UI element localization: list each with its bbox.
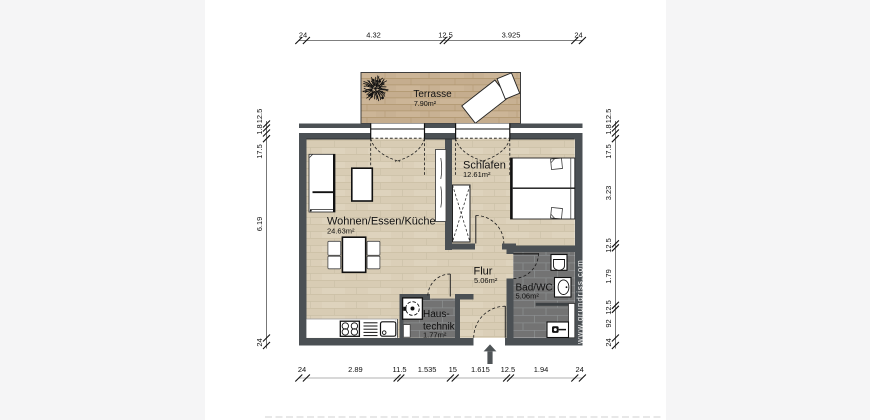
svg-text:5.06m²: 5.06m²	[474, 276, 498, 285]
svg-text:12.5: 12.5	[255, 109, 264, 124]
svg-text:92: 92	[604, 319, 613, 327]
svg-text:12.5: 12.5	[604, 109, 613, 124]
svg-text:24: 24	[576, 365, 584, 374]
svg-text:12.5: 12.5	[438, 31, 453, 40]
svg-text:17.5: 17.5	[604, 144, 613, 159]
svg-text:1.77m²: 1.77m²	[423, 331, 447, 340]
svg-text:24.63m²: 24.63m²	[327, 226, 355, 235]
svg-text:4.32: 4.32	[366, 31, 381, 40]
svg-text:24: 24	[604, 338, 613, 346]
svg-text:1.535: 1.535	[418, 365, 437, 374]
svg-text:24: 24	[574, 31, 582, 40]
svg-text:Haus-: Haus-	[423, 309, 450, 320]
svg-text:12.61m²: 12.61m²	[463, 170, 491, 179]
svg-text:11.5: 11.5	[392, 365, 406, 374]
svg-text:5.06m²: 5.06m²	[516, 292, 540, 301]
svg-text:24: 24	[298, 365, 306, 374]
svg-text:1.8: 1.8	[604, 124, 613, 134]
svg-text:12.5: 12.5	[604, 300, 613, 315]
svg-text:1.615: 1.615	[471, 365, 490, 374]
svg-text:3.925: 3.925	[502, 31, 521, 40]
svg-text:1.94: 1.94	[534, 365, 549, 374]
svg-text:2.89: 2.89	[348, 365, 363, 374]
svg-text:6.19: 6.19	[255, 217, 264, 232]
svg-text:17.5: 17.5	[255, 144, 264, 159]
svg-text:7.90m²: 7.90m²	[414, 99, 437, 108]
svg-text:12.5: 12.5	[501, 365, 516, 374]
svg-text:3.23: 3.23	[604, 186, 613, 201]
svg-text:12.5: 12.5	[604, 238, 613, 253]
svg-text:24: 24	[255, 338, 264, 346]
svg-text:15: 15	[449, 365, 457, 374]
svg-text:1.79: 1.79	[604, 269, 613, 284]
svg-text:24: 24	[299, 31, 307, 40]
svg-text:www.grundriss.com: www.grundriss.com	[575, 259, 584, 345]
svg-text:1.8: 1.8	[255, 124, 264, 134]
